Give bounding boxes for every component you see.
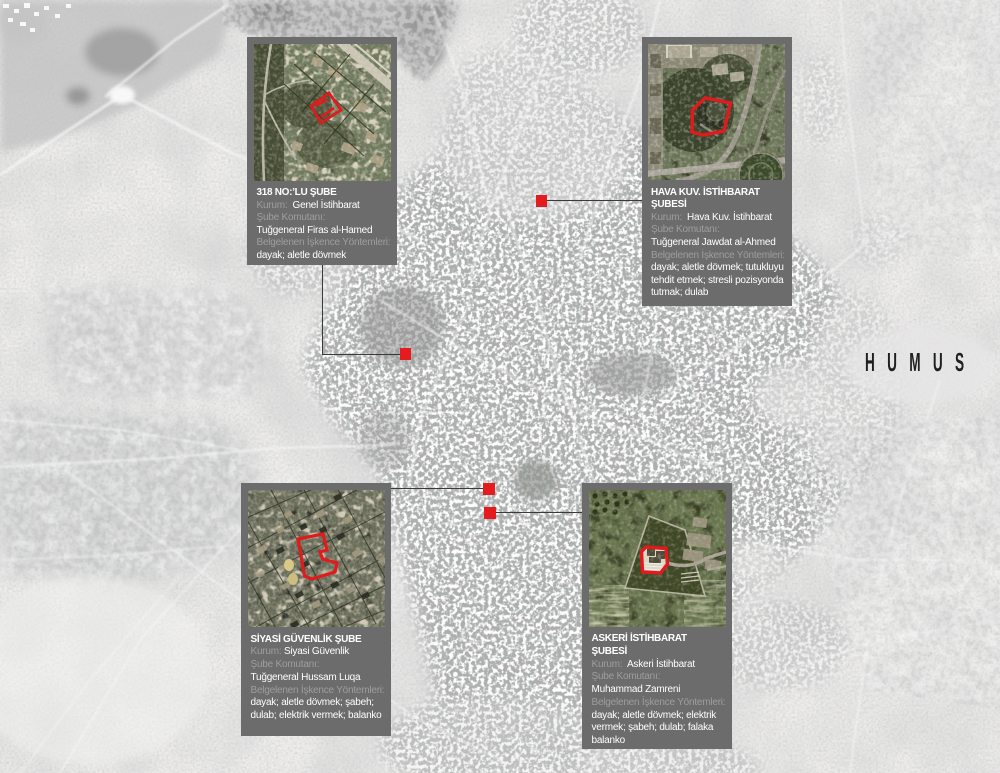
svg-text:HUMUS: HUMUS: [865, 349, 976, 377]
